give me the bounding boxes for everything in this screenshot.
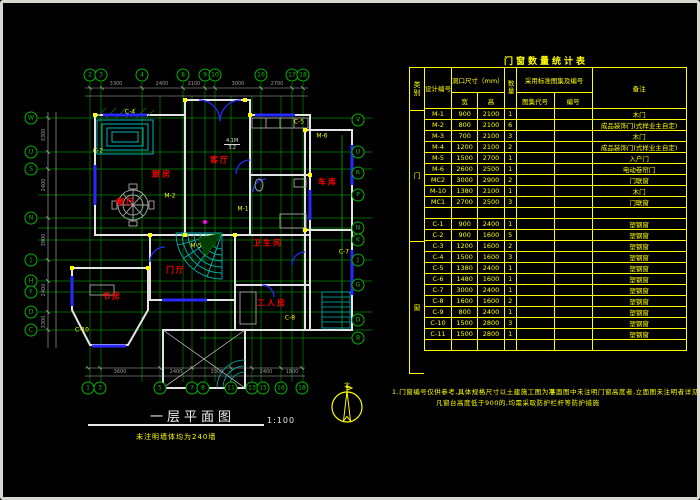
room-label-text: 工人房 — [257, 299, 287, 308]
grid-bubble-right: B — [352, 332, 365, 345]
cell-remark: 塑钢窗 — [592, 318, 686, 329]
grid-bubble-label: 9 — [203, 72, 207, 79]
cell-design-no: C-9 — [425, 307, 452, 318]
cell-atlas-code — [516, 285, 554, 296]
accent-dot — [203, 220, 207, 224]
grid-bubble-left: J — [25, 254, 38, 267]
cell-qty: 6 — [504, 120, 516, 131]
cell-qty: 3 — [504, 252, 516, 263]
schedule-row: C-8 1600 1600 2 塑钢窗 — [425, 296, 687, 307]
cell-atlas-no — [554, 197, 592, 208]
cell-design-no: M-3 — [425, 131, 452, 142]
schedule-note-2: 平面图中未注明门窗高度者,立面图未注明者详见门窗表 — [549, 386, 700, 396]
dimension-text: 2400 — [156, 81, 169, 87]
cell-qty: 1 — [504, 219, 516, 230]
cell-remark: 入户门 — [592, 153, 686, 164]
cell-qty: 1 — [504, 285, 516, 296]
grid-bubble-label: 16 — [277, 385, 285, 392]
cell-atlas-no — [554, 153, 592, 164]
dimension-value: 2100 — [188, 81, 201, 87]
schedule-row: M-2 800 2100 6 成品装饰门(式样业主自定) — [425, 120, 687, 131]
schedule-row: M-10 1380 2100 1 木门 — [425, 186, 687, 197]
cell-width: 3000 — [452, 285, 478, 296]
grid-bubble-label: B — [356, 335, 360, 342]
cell-height: 2800 — [478, 329, 504, 340]
grid-bubble-label: 18 — [299, 72, 307, 79]
opening-tag: C-10 — [75, 327, 89, 334]
cell-design-no: C-6 — [425, 274, 452, 285]
dimension-text: 3300 — [211, 369, 224, 375]
opening-tag-text: C-7 — [339, 249, 349, 256]
cell-width: 1380 — [452, 186, 478, 197]
cell-remark: 门联窗 — [592, 175, 686, 186]
cell-width: 1200 — [452, 142, 478, 153]
cell-design-no: MC2 — [425, 175, 452, 186]
cell-design-no: C-8 — [425, 296, 452, 307]
cell-qty: 3 — [504, 131, 516, 142]
opening-tag: C-5 — [294, 119, 304, 126]
grid-bubble-label: K — [356, 237, 360, 244]
room-label: 工人房 — [257, 298, 287, 309]
cell-design-no: C-4 — [425, 252, 452, 263]
opening-tag: M-2 — [164, 193, 175, 200]
north-compass — [332, 386, 362, 422]
cell-atlas-code — [516, 186, 554, 197]
grid-bubble-label: 3 — [99, 72, 103, 79]
opening-tag-text: M-6 — [316, 133, 327, 140]
cell-atlas-code — [516, 131, 554, 142]
grid-bubble-label: N — [29, 215, 34, 222]
dimension-text: 3900 — [41, 234, 47, 247]
schedule-row: C-4 1500 1600 3 塑钢窗 — [425, 252, 687, 263]
cell-height: 2500 — [478, 164, 504, 175]
cell-remark: 塑钢窗 — [592, 285, 686, 296]
opening-tag-text: M-5 — [190, 243, 201, 250]
cell-atlas-no — [554, 219, 592, 230]
grid-bubble-label: 17 — [288, 72, 296, 79]
header-opening-size: 洞口尺寸（mm） — [452, 68, 505, 93]
cell-qty: 1 — [504, 109, 516, 120]
door-section-label: 门 — [410, 111, 424, 242]
room-label-text: 车库 — [318, 178, 338, 187]
cell-height: 2400 — [478, 263, 504, 274]
cell-remark: 塑钢窗 — [592, 263, 686, 274]
schedule-row: MC1 2700 2500 3 门联窗 — [425, 197, 687, 208]
terrace-steps — [97, 120, 153, 154]
cell-qty — [504, 340, 516, 351]
grid-bubble-right: J — [352, 254, 365, 267]
cell-width — [452, 340, 478, 351]
dimension-text: 2400 — [260, 369, 273, 375]
cell-atlas-code — [516, 197, 554, 208]
grid-bubble-label: 4 — [140, 72, 144, 79]
schedule-row: M-5 1500 2700 1 入户门 — [425, 153, 687, 164]
cell-qty: 2 — [504, 142, 516, 153]
dimension-value: 2400 — [260, 369, 273, 375]
opening-tag: M-1 — [237, 206, 248, 213]
grid-bubble-label: 5 — [158, 385, 162, 392]
schedule-row: C-10 1500 2800 3 塑钢窗 — [425, 318, 687, 329]
cell-atlas-no — [554, 274, 592, 285]
cell-remark: 塑钢窗 — [592, 230, 686, 241]
schedule-row: C-2 900 1600 5 塑钢窗 — [425, 230, 687, 241]
cell-design-no: M-10 — [425, 186, 452, 197]
opening-tag-text: M-1 — [237, 206, 248, 213]
header-atlas-code: 图集代号 — [516, 93, 554, 109]
cell-atlas-no — [554, 252, 592, 263]
grid-bubble-bottom: 8 — [197, 382, 210, 395]
cell-design-no: C-3 — [425, 241, 452, 252]
grid-bubble-right: D — [352, 314, 365, 327]
header-design-no: 设计编号 — [425, 68, 452, 109]
dimension-text: 2400 — [41, 179, 47, 192]
cell-remark: 成品装饰门(式样业主自定) — [592, 120, 686, 131]
cell-remark — [592, 340, 686, 351]
grid-bubble-left: U — [25, 146, 38, 159]
grid-bubble-label: J — [357, 257, 359, 264]
cell-qty: 2 — [504, 241, 516, 252]
cell-atlas-code — [516, 263, 554, 274]
opening-tag: C-7 — [339, 249, 349, 256]
cell-atlas-no — [554, 120, 592, 131]
grid-bubble-label: P — [356, 192, 360, 199]
cell-design-no: M-6 — [425, 164, 452, 175]
schedule-row — [425, 208, 687, 219]
cell-atlas-code — [516, 318, 554, 329]
schedule-row: C-3 1200 1600 2 塑钢窗 — [425, 241, 687, 252]
schedule-row: M-3 700 2100 3 木门 — [425, 131, 687, 142]
cell-width: 1200 — [452, 241, 478, 252]
grid-bubble-left: S — [25, 163, 38, 176]
cell-atlas-no — [554, 263, 592, 274]
cell-width: 1500 — [452, 252, 478, 263]
cell-atlas-code — [516, 219, 554, 230]
room-elevation-tag: 4.1M 3.2 — [224, 138, 240, 151]
cell-qty: 1 — [504, 186, 516, 197]
header-qty-label: 数量 — [505, 80, 515, 95]
dimension-text: 3300 — [110, 81, 123, 87]
cell-qty: 1 — [504, 307, 516, 318]
header-atlas: 采用标准图集及编号 — [516, 68, 592, 93]
room-label-text: 餐厅 — [116, 198, 136, 207]
cell-height: 2900 — [478, 175, 504, 186]
schedule-note-1: 1.门窗编号仅供参考,具体规格尺寸以土建施工图为准, — [392, 386, 558, 396]
cell-remark: 塑钢窗 — [592, 241, 686, 252]
grid-bubble-label: C — [29, 327, 33, 334]
cell-remark: 木门 — [592, 109, 686, 120]
cell-design-no: M-1 — [425, 109, 452, 120]
dimension-text: 3300 — [41, 316, 47, 329]
dimension-value: 2700 — [271, 81, 284, 87]
schedule-row: MC2 3000 2900 2 门联窗 — [425, 175, 687, 186]
grid-bubble-top: 8 — [177, 69, 190, 82]
cell-design-no — [425, 208, 452, 219]
furniture — [90, 118, 308, 324]
grid-bubble-top: 3 — [95, 69, 108, 82]
cell-design-no: C-11 — [425, 329, 452, 340]
opening-tag: M-5 — [190, 243, 201, 250]
cell-design-no: MC1 — [425, 197, 452, 208]
room-label-text: 卫生间 — [253, 239, 283, 248]
grid-bubble-label: 16 — [257, 72, 265, 79]
schedule-header: 设计编号 洞口尺寸（mm） 数量 采用标准图集及编号 备注 宽 高 图集代号 编… — [425, 68, 687, 109]
header-remark: 备注 — [592, 68, 686, 109]
cell-height: 2400 — [478, 285, 504, 296]
dimension-text: 3300 — [41, 129, 47, 142]
grid-bubble-bottom: 18 — [296, 382, 309, 395]
dimension-text: 2400 — [170, 369, 183, 375]
cell-width: 3000 — [452, 175, 478, 186]
cell-design-no: C-2 — [425, 230, 452, 241]
cell-design-no: M-4 — [425, 142, 452, 153]
cell-atlas-no — [554, 142, 592, 153]
dimension-value: 3300 — [110, 81, 123, 87]
cad-application-window: { "plan": { "title": "一层平面图", "scale": "… — [0, 0, 700, 500]
cell-atlas-code — [516, 120, 554, 131]
cell-remark: 塑钢窗 — [592, 307, 686, 318]
cell-width: 900 — [452, 230, 478, 241]
room-label: 卫生间 — [253, 238, 283, 249]
cell-qty: 1 — [504, 153, 516, 164]
category-column: 类别 门 窗 — [409, 67, 424, 374]
cell-height: 1600 — [478, 230, 504, 241]
cell-remark: 木门 — [592, 131, 686, 142]
room-label-text: 书房 — [102, 292, 122, 301]
grid-bubble-right: V — [352, 114, 365, 127]
room-label-text: 厨房 — [152, 170, 172, 179]
cell-width: 800 — [452, 120, 478, 131]
opening-tag: C-2 — [93, 148, 103, 155]
category-header-label: 类别 — [412, 81, 422, 97]
opening-tag-text: M-2 — [164, 193, 175, 200]
schedule-table: 设计编号 洞口尺寸（mm） 数量 采用标准图集及编号 备注 宽 高 图集代号 编… — [424, 67, 687, 351]
cell-atlas-no — [554, 131, 592, 142]
grid-bubble-label: D — [356, 317, 361, 324]
cell-atlas-code — [516, 241, 554, 252]
grid-bubble-label: 7 — [190, 385, 194, 392]
cell-atlas-no — [554, 329, 592, 340]
cell-design-no: C-5 — [425, 263, 452, 274]
opening-tag-text: C-5 — [294, 119, 304, 126]
cell-atlas-code — [516, 307, 554, 318]
cell-remark: 塑钢窗 — [592, 219, 686, 230]
dimension-value: 3000 — [232, 81, 245, 87]
cell-width: 1500 — [452, 153, 478, 164]
cell-atlas-no — [554, 307, 592, 318]
grid-bubble-label: N — [356, 225, 361, 232]
cell-height: 2100 — [478, 120, 504, 131]
cell-atlas-code — [516, 329, 554, 340]
cell-remark — [592, 208, 686, 219]
cell-atlas-no — [554, 241, 592, 252]
opening-tag: C-8 — [285, 315, 295, 322]
north-label: 北 — [344, 381, 350, 390]
cell-atlas-code — [516, 153, 554, 164]
dimension-value: 3300 — [211, 369, 224, 375]
dimension-value: 1800 — [286, 369, 299, 375]
dimension-value: 2400 — [41, 284, 47, 297]
plan-note: 未注明墙体均为240墙 — [136, 432, 216, 442]
cell-qty: 2 — [504, 296, 516, 307]
dimension-text: 1800 — [286, 369, 299, 375]
cell-atlas-no — [554, 318, 592, 329]
cell-remark: 门联窗 — [592, 197, 686, 208]
grid-bubble-label: 8 — [201, 385, 205, 392]
cell-design-no: C-7 — [425, 285, 452, 296]
schedule-row: M-6 2600 2500 1 电动卷帘门 — [425, 164, 687, 175]
cell-remark: 成品装饰门(式样业主自定) — [592, 142, 686, 153]
cell-width: 800 — [452, 307, 478, 318]
grid-bubble-bottom: 3 — [94, 382, 107, 395]
header-atlas-no: 编号 — [554, 93, 592, 109]
cell-qty: 1 — [504, 329, 516, 340]
opening-tag: C-4 — [125, 109, 135, 116]
opening-tag-text: C-2 — [93, 148, 103, 155]
grid-bubble-top: 18 — [297, 69, 310, 82]
cell-atlas-code — [516, 142, 554, 153]
schedule-title: 门窗数量统计表 — [409, 54, 683, 67]
cell-atlas-no — [554, 296, 592, 307]
dimension-text: 2100 — [188, 81, 201, 87]
cell-height: 1600 — [478, 241, 504, 252]
cell-atlas-code — [516, 175, 554, 186]
opening-tag-text: C-4 — [125, 109, 135, 116]
cell-width — [452, 208, 478, 219]
cell-design-no: C-1 — [425, 219, 452, 230]
grid-bubble-label: 3 — [98, 385, 102, 392]
grid-bubble-label: 11 — [227, 385, 235, 392]
schedule-row: C-7 3000 2400 1 塑钢窗 — [425, 285, 687, 296]
cell-width: 1500 — [452, 329, 478, 340]
schedule-row: C-1 900 2400 1 塑钢窗 — [425, 219, 687, 230]
grid-bubble-label: U — [29, 149, 33, 156]
cell-height: 2100 — [478, 142, 504, 153]
dimension-value: 2400 — [156, 81, 169, 87]
cell-width: 700 — [452, 131, 478, 142]
grid-bubble-left: F — [25, 286, 38, 299]
porch-cross — [163, 330, 245, 388]
dimension-text: 2400 — [41, 284, 47, 297]
grid-bubble-label: S — [29, 166, 33, 173]
grid-bubble-left: C — [25, 324, 38, 337]
cell-atlas-no — [554, 340, 592, 351]
cell-height: 1600 — [478, 252, 504, 263]
cell-width: 2700 — [452, 197, 478, 208]
cell-atlas-code — [516, 164, 554, 175]
schedule-note-3: 凡窗台高度低于900的,均需采取防护栏杆等防护措施 — [436, 397, 599, 407]
cell-width: 1500 — [452, 318, 478, 329]
cell-width: 1600 — [452, 296, 478, 307]
cell-height: 2800 — [478, 318, 504, 329]
cell-height: 2100 — [478, 186, 504, 197]
room-tag-upper: 4.1M — [224, 138, 240, 145]
cell-atlas-code — [516, 230, 554, 241]
grid-bubble-label: 10 — [211, 72, 219, 79]
dimension-value: 3900 — [41, 234, 47, 247]
room-label: 门厅 — [166, 265, 186, 276]
grid-bubble-label: G — [356, 282, 361, 289]
cell-design-no: C-10 — [425, 318, 452, 329]
room-label: 餐厅 — [116, 197, 136, 208]
cell-height: 1600 — [478, 296, 504, 307]
room-label: 客厅 — [210, 155, 230, 166]
plan-title-underline — [88, 424, 264, 426]
grid-bubble-right: P — [352, 189, 365, 202]
grid-bubble-bottom: 16 — [275, 382, 288, 395]
cell-height: 2400 — [478, 219, 504, 230]
grid-bubble-bottom: 15 — [257, 382, 270, 395]
grid-bubble-top: 4 — [136, 69, 149, 82]
schedule-row: M-4 1200 2100 2 成品装饰门(式样业主自定) — [425, 142, 687, 153]
schedule-row: C-6 1480 1600 1 塑钢窗 — [425, 274, 687, 285]
grid-bubble-label: V — [356, 117, 360, 124]
grid-bubble-left: N — [25, 212, 38, 225]
grid-bubble-label: D — [29, 309, 34, 316]
cell-height: 2500 — [478, 197, 504, 208]
schedule-row: C-5 1380 2400 1 塑钢窗 — [425, 263, 687, 274]
cell-height: 2700 — [478, 153, 504, 164]
cell-qty: 3 — [504, 197, 516, 208]
cell-remark: 塑钢窗 — [592, 274, 686, 285]
opening-tag: M-6 — [316, 133, 327, 140]
room-label-text: 客厅 — [210, 156, 230, 165]
grid-bubble-label: F — [29, 289, 32, 296]
cell-height: 2100 — [478, 131, 504, 142]
grid-bubble-label: H — [29, 278, 34, 285]
cell-qty — [504, 208, 516, 219]
room-label: 车库 — [318, 177, 338, 188]
dimension-value: 3300 — [41, 316, 47, 329]
room-tag-lower: 3.2 — [224, 145, 240, 151]
cell-remark: 电动卷帘门 — [592, 164, 686, 175]
grid-bubble-label: 15 — [259, 385, 267, 392]
cell-qty: 3 — [504, 318, 516, 329]
cell-remark: 木门 — [592, 186, 686, 197]
cell-width: 1480 — [452, 274, 478, 285]
dimension-text: 3000 — [232, 81, 245, 87]
cell-atlas-code — [516, 208, 554, 219]
cell-qty: 5 — [504, 230, 516, 241]
grid-bubble-bottom: 5 — [154, 382, 167, 395]
cell-height: 2100 — [478, 109, 504, 120]
grid-bubble-top: 16 — [255, 69, 268, 82]
schedule-row: C-11 1500 2800 1 塑钢窗 — [425, 329, 687, 340]
cell-qty: 1 — [504, 164, 516, 175]
schedule-row: M-1 900 2100 1 木门 — [425, 109, 687, 120]
cell-atlas-no — [554, 186, 592, 197]
cell-design-no — [425, 340, 452, 351]
cell-qty: 1 — [504, 263, 516, 274]
cell-qty: 1 — [504, 274, 516, 285]
header-height: 高 — [478, 93, 504, 109]
cell-atlas-no — [554, 285, 592, 296]
grid-bubble-left: W — [25, 112, 38, 125]
grid-lines — [38, 82, 372, 382]
cell-atlas-no — [554, 164, 592, 175]
opening-tag-text: C-10 — [75, 327, 89, 334]
grid-bubble-label: 8 — [181, 72, 185, 79]
cell-width: 900 — [452, 109, 478, 120]
stair-straight — [322, 292, 350, 328]
cell-atlas-code — [516, 109, 554, 120]
grid-bubble-top: 10 — [209, 69, 222, 82]
dimension-value: 2400 — [41, 179, 47, 192]
door-window-schedule: 类别 门 窗 设计编号 洞口尺寸（mm） 数量 采用标准图集及编号 备注 宽 高… — [409, 67, 687, 374]
cell-atlas-code — [516, 296, 554, 307]
dimension-text: 2700 — [271, 81, 284, 87]
room-label-text: 门厅 — [166, 266, 186, 275]
grid-bubble-right: R — [352, 167, 365, 180]
